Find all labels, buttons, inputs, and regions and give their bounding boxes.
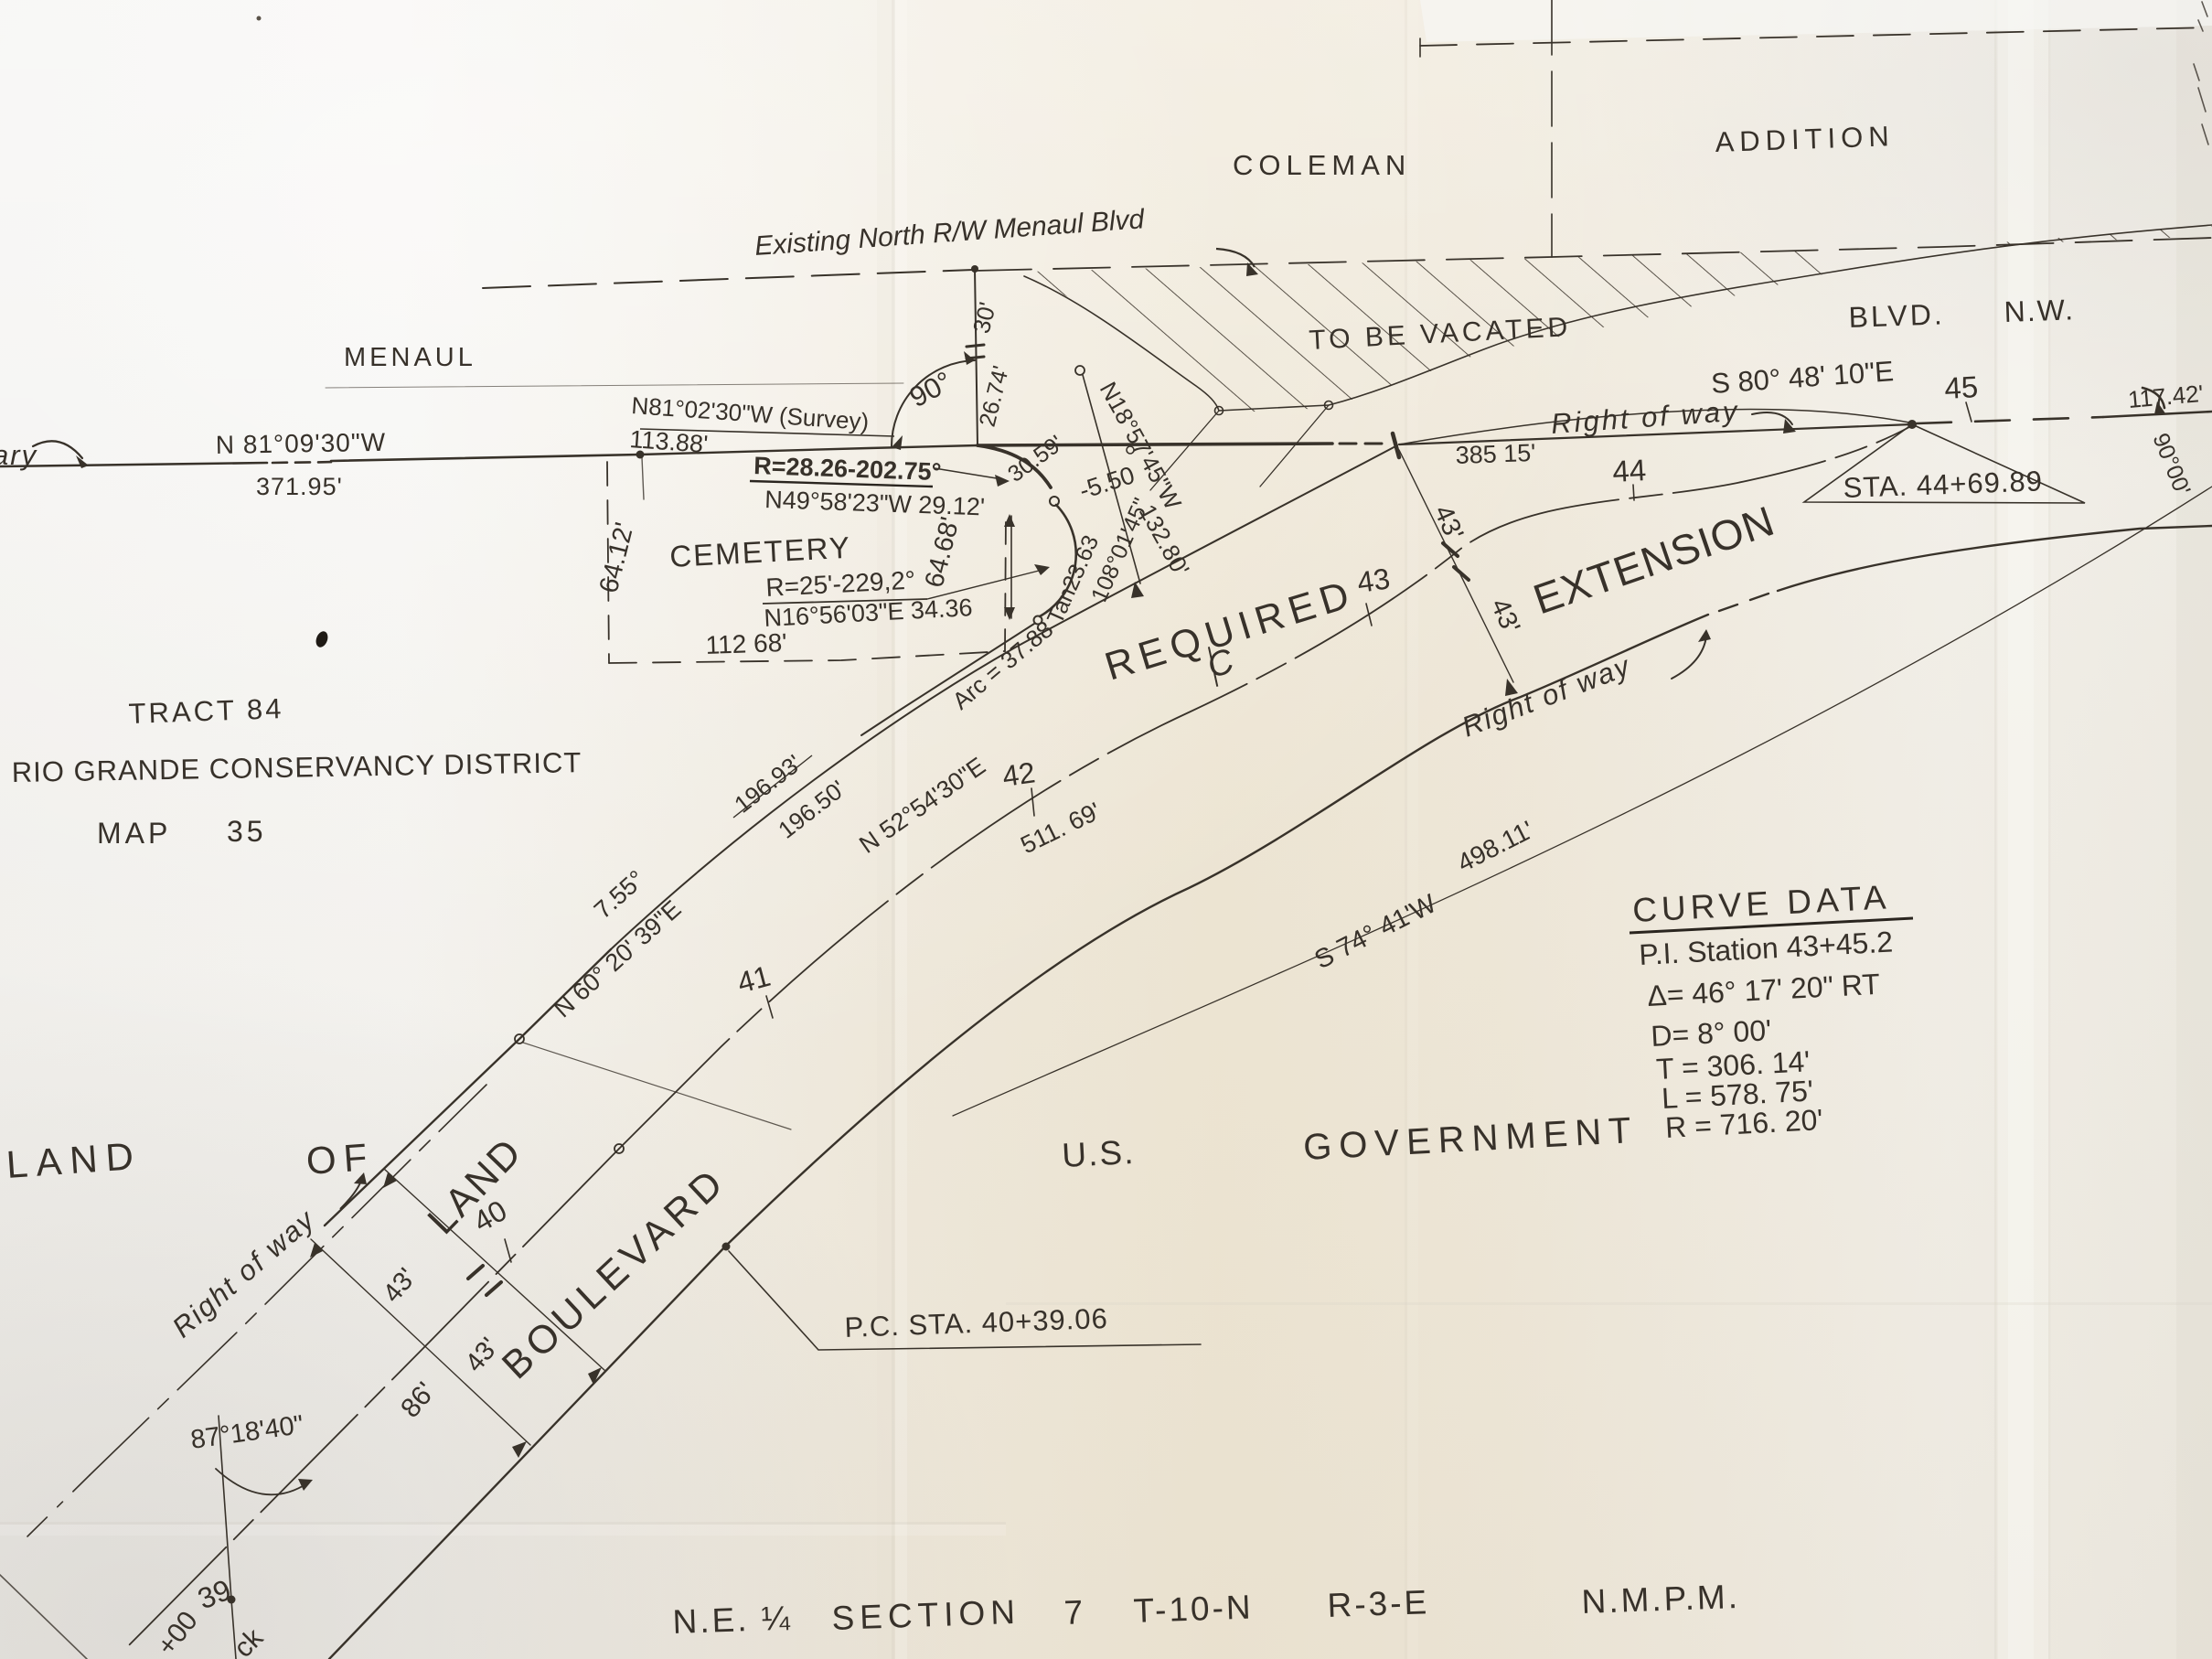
svg-text:T-10-N: T-10-N [1133, 1588, 1254, 1630]
svg-text:43: 43 [1355, 562, 1392, 599]
svg-text:112 68': 112 68' [705, 628, 787, 659]
svg-text:N.E. ¼: N.E. ¼ [672, 1599, 793, 1641]
svg-text:R-3-E: R-3-E [1327, 1583, 1430, 1624]
svg-text:U.S.: U.S. [1061, 1133, 1136, 1174]
svg-text:N.M.P.M.: N.M.P.M. [1581, 1578, 1741, 1621]
svg-text:ADDITION: ADDITION [1715, 120, 1895, 158]
svg-text:SECTION: SECTION [831, 1593, 1021, 1637]
svg-text:MAP: MAP [97, 817, 171, 850]
svg-text:COLEMAN: COLEMAN [1233, 149, 1411, 181]
svg-text:385 15': 385 15' [1455, 439, 1536, 469]
svg-text:N 81°09'30"W: N 81°09'30"W [216, 428, 387, 459]
svg-text:35: 35 [227, 815, 267, 848]
svg-text:OF: OF [305, 1135, 375, 1183]
svg-text:TRACT 84: TRACT 84 [128, 692, 284, 730]
svg-text:ary: ary [0, 439, 38, 471]
svg-text:MENAUL: MENAUL [344, 343, 476, 372]
svg-text:42: 42 [1000, 755, 1037, 793]
svg-text:BLVD.: BLVD. [1848, 297, 1945, 334]
svg-text:44: 44 [1611, 453, 1647, 488]
svg-text:371.95': 371.95' [256, 473, 343, 500]
svg-text:7: 7 [1063, 1593, 1084, 1632]
svg-text:N.W.: N.W. [2004, 293, 2076, 328]
svg-text:113.88': 113.88' [629, 425, 710, 458]
svg-text:45: 45 [1943, 369, 1979, 405]
